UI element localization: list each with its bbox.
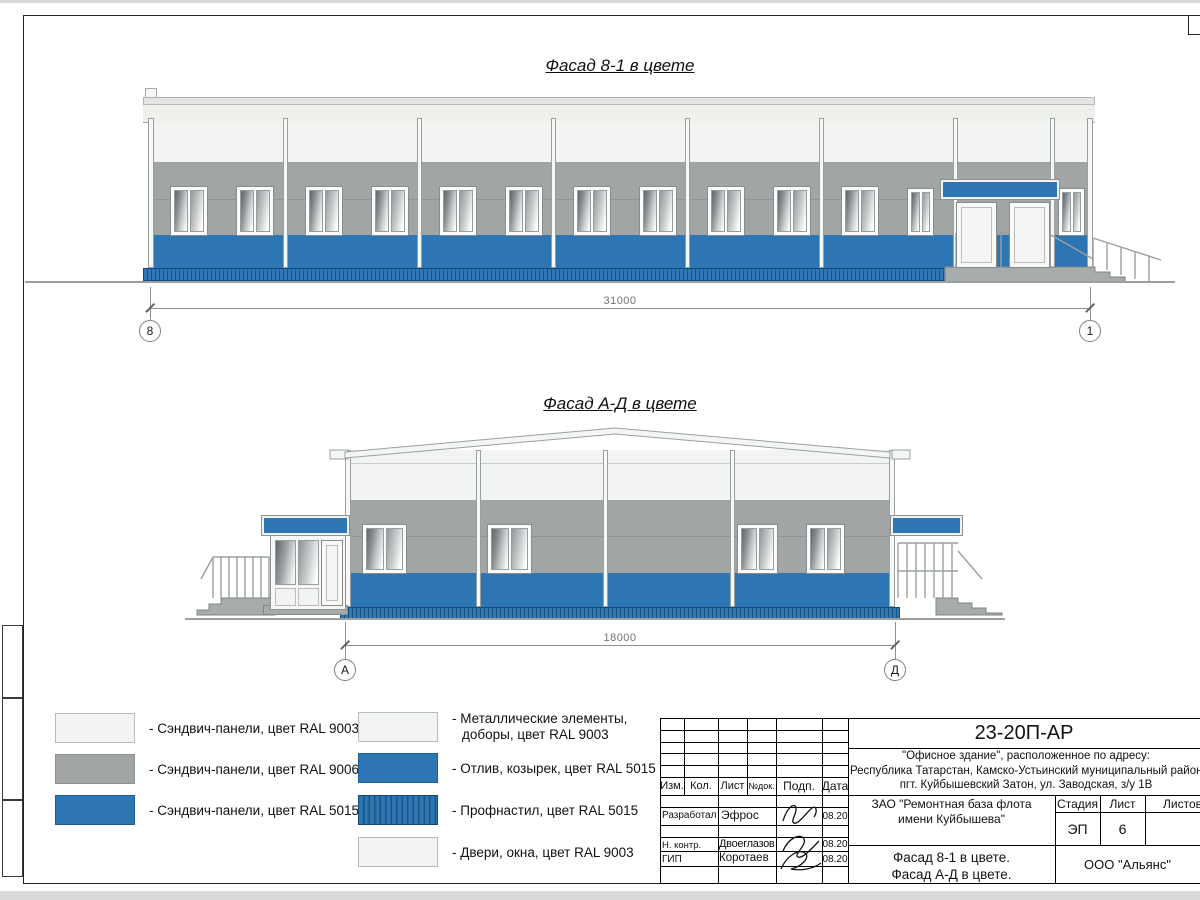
- drawing-sheet: Фасад 8-1 в цвете: [0, 0, 1200, 900]
- margin-box: [2, 698, 23, 800]
- legend-item: - Сэндвич-панели, цвет RAL 9003: [55, 713, 359, 743]
- window-glass: [810, 528, 825, 570]
- staff-role: ГИП: [662, 854, 682, 865]
- window: [439, 186, 477, 236]
- window: [806, 524, 845, 574]
- axis-marker-1: 1: [1079, 320, 1101, 342]
- window: [573, 186, 611, 236]
- extension-line: [1090, 287, 1091, 320]
- legend-label: - Металлические элементы, доборы, цвет R…: [452, 711, 627, 743]
- porch-canopy: [262, 516, 349, 535]
- column-post: [283, 118, 288, 268]
- side-canopy: [891, 516, 962, 535]
- legend-label: - Сэндвич-панели, цвет RAL 9006: [149, 762, 359, 777]
- title-block-line: [660, 883, 848, 884]
- legend-label: - Сэндвич-панели, цвет RAL 9003: [149, 721, 359, 736]
- entrance-canopy-sign: [941, 180, 1059, 199]
- window-glass: [659, 190, 673, 232]
- window: [841, 186, 879, 236]
- column-post: [819, 118, 824, 268]
- dimension-line: [345, 645, 896, 646]
- staff-date: 08.20: [822, 853, 848, 866]
- legend-label: - Двери, окна, цвет RAL 9003: [452, 845, 634, 860]
- window: [773, 186, 811, 236]
- window-glass: [759, 528, 775, 570]
- stage-value: ЭП: [1055, 812, 1100, 845]
- window-glass: [922, 192, 931, 232]
- window-glass: [727, 190, 741, 232]
- title-block-line: [660, 718, 848, 719]
- col-header-kol: Кол.: [684, 777, 718, 795]
- legend-item: - Отлив, козырек, цвет RAL 5015: [358, 753, 656, 783]
- client-name: ЗАО "Ремонтная база флота имени Куйбышев…: [848, 797, 1055, 827]
- staff-role: Н. контр.: [662, 840, 701, 851]
- col-header-data: Дата: [822, 777, 848, 795]
- company-name: ООО "Альянс": [1055, 845, 1200, 883]
- window: [371, 186, 409, 236]
- porch-vestibule: [270, 534, 346, 610]
- window-glass: [711, 190, 725, 232]
- legend-label-line1: - Металлические элементы,: [452, 711, 627, 727]
- legend-label: - Профнастил, цвет RAL 5015: [452, 803, 638, 818]
- list-value: 6: [1100, 812, 1145, 845]
- sheet-name: Фасад 8-1 в цвете. Фасад А-Д в цвете.: [848, 849, 1055, 883]
- window: [639, 186, 677, 236]
- legend-label: - Отлив, козырек, цвет RAL 5015: [452, 761, 656, 776]
- page-edge-top: [0, 0, 1200, 3]
- window-glass: [643, 190, 657, 232]
- window-glass: [366, 528, 384, 570]
- ground-line: [25, 281, 1175, 283]
- corner-trim: [148, 118, 154, 268]
- window: [737, 524, 778, 574]
- wall-band-white: [148, 122, 1093, 162]
- extension-line: [895, 622, 896, 659]
- axis-marker-a: А: [334, 659, 356, 681]
- address-line: пгт. Куйбышевский Затон, ул. Заводская, …: [850, 778, 1200, 793]
- column-post: [551, 118, 556, 268]
- door-panel: [1014, 207, 1045, 263]
- window: [236, 186, 274, 236]
- dimension-value: 31000: [520, 295, 720, 307]
- panel-joint: [148, 199, 1093, 200]
- title-block-line: [848, 883, 1200, 884]
- window-glass: [511, 528, 529, 570]
- title-block-line: [660, 765, 848, 766]
- page-edge-bottom: [0, 891, 1200, 900]
- signature: [777, 831, 823, 875]
- dimension-line: [150, 308, 1091, 309]
- title-block-line: [660, 753, 848, 754]
- legend-swatch-ral5015: [358, 753, 438, 783]
- facade-a-d-title: Фасад А-Д в цвете: [100, 394, 1140, 414]
- project-address: "Офисное здание", расположенное по адрес…: [850, 749, 1200, 793]
- window-glass: [509, 190, 523, 232]
- window-glass: [593, 190, 607, 232]
- vestibule-glass: [275, 540, 296, 585]
- vestibule-spandrel: [275, 588, 296, 606]
- legend-label-line2: доборы, цвет RAL 9003: [452, 727, 627, 743]
- listov-label: Листов: [1145, 796, 1200, 811]
- window-glass: [174, 190, 188, 232]
- legend-swatch-ral9006: [55, 754, 135, 784]
- legend-item: - Двери, окна, цвет RAL 9003: [358, 837, 634, 867]
- window-glass: [491, 528, 509, 570]
- axis-marker-8: 8: [139, 320, 161, 342]
- window: [170, 186, 208, 236]
- staff-date: 08.20: [822, 808, 848, 824]
- window-glass: [793, 190, 807, 232]
- window: [907, 188, 934, 236]
- staff-role: Разработал: [662, 810, 716, 821]
- top-right-stamp-box: [1188, 15, 1200, 35]
- window-glass: [309, 190, 323, 232]
- dimension-value: 18000: [520, 632, 720, 644]
- porch-door: [321, 540, 343, 606]
- window-glass: [525, 190, 539, 232]
- legend-label: - Сэндвич-панели, цвет RAL 5015: [149, 803, 359, 818]
- column-post: [476, 450, 481, 607]
- title-block-line: [660, 742, 848, 743]
- window-glass: [190, 190, 204, 232]
- list-label: Лист: [1100, 796, 1145, 811]
- window: [487, 524, 532, 574]
- legend-item: - Профнастил, цвет RAL 5015: [358, 795, 638, 825]
- legend-item: - Сэндвич-панели, цвет RAL 9006: [55, 754, 359, 784]
- title-block-line: [660, 730, 848, 731]
- legend-swatch-ral9003: [358, 837, 438, 867]
- window-glass: [443, 190, 457, 232]
- window-glass: [325, 190, 339, 232]
- column-post: [685, 118, 690, 268]
- porch-right-railing-stairs: [890, 535, 1005, 617]
- extension-line: [345, 622, 346, 659]
- window-glass: [845, 190, 859, 232]
- window-glass: [256, 190, 270, 232]
- sheet-name-line: Фасад 8-1 в цвете.: [848, 849, 1055, 866]
- title-block-line: [660, 795, 848, 796]
- axis-marker-d: Д: [884, 659, 906, 681]
- door-panel: [326, 545, 338, 601]
- window-glass: [577, 190, 591, 232]
- margin-box: [2, 625, 23, 698]
- window-glass: [827, 528, 842, 570]
- margin-box: [2, 800, 23, 877]
- window: [505, 186, 543, 236]
- legend-swatch-ral9003: [55, 713, 135, 743]
- signature: [779, 799, 821, 827]
- window: [305, 186, 343, 236]
- entrance-door: [956, 202, 997, 268]
- sheet-name-line: Фасад А-Д в цвете.: [848, 866, 1055, 883]
- col-header-izm: Изм.: [660, 777, 684, 795]
- address-line: "Офисное здание", расположенное по адрес…: [850, 749, 1200, 764]
- window-glass: [861, 190, 875, 232]
- title-block-line: [660, 718, 661, 883]
- client-line: имени Куйбышева": [848, 812, 1055, 827]
- window-glass: [459, 190, 473, 232]
- facade-8-1-title: Фасад 8-1 в цвете: [100, 56, 1140, 76]
- legend-swatch-ral9003: [358, 712, 438, 742]
- window-glass: [391, 190, 405, 232]
- extension-line: [150, 287, 151, 320]
- window-glass: [386, 528, 404, 570]
- doc-number: 23-20П-АР: [848, 718, 1200, 748]
- legend-swatch-profiled: [358, 795, 438, 825]
- screenshot-root: { "titles": { "facade_8_1": "Фасад 8-1 в…: [0, 0, 1200, 900]
- window: [707, 186, 745, 236]
- vestibule-spandrel: [298, 588, 319, 606]
- window: [362, 524, 407, 574]
- window-glass: [240, 190, 254, 232]
- column-post: [417, 118, 422, 268]
- wall-band-blue: [345, 573, 895, 607]
- window-glass: [375, 190, 389, 232]
- window-glass: [911, 192, 920, 232]
- legend-item: - Металлические элементы, доборы, цвет R…: [358, 711, 627, 743]
- entrance-door: [1009, 202, 1050, 268]
- legend-item: - Сэндвич-панели, цвет RAL 5015: [55, 795, 359, 825]
- staff-name: Двоеглазов: [719, 838, 774, 850]
- ground-line: [185, 618, 1005, 620]
- address-line: Республика Татарстан, Камско-Устьинский …: [850, 764, 1200, 779]
- column-post: [730, 450, 735, 607]
- window-glass: [777, 190, 791, 232]
- window-glass: [741, 528, 757, 570]
- col-header-podp: Подп.: [776, 777, 822, 795]
- staff-date: 08.20: [822, 838, 848, 851]
- gable-roof: [320, 424, 920, 464]
- client-line: ЗАО "Ремонтная база флота: [848, 797, 1055, 812]
- column-post: [603, 450, 608, 607]
- stage-label: Стадия: [1055, 796, 1100, 811]
- door-panel: [961, 207, 992, 263]
- vestibule-glass: [298, 540, 319, 585]
- col-header-list: Лист: [718, 777, 747, 795]
- col-header-ndok: №док.: [747, 777, 776, 795]
- staff-name: Эфрос: [721, 808, 759, 822]
- staff-name: Коротаев: [719, 852, 769, 864]
- legend-swatch-ral5015: [55, 795, 135, 825]
